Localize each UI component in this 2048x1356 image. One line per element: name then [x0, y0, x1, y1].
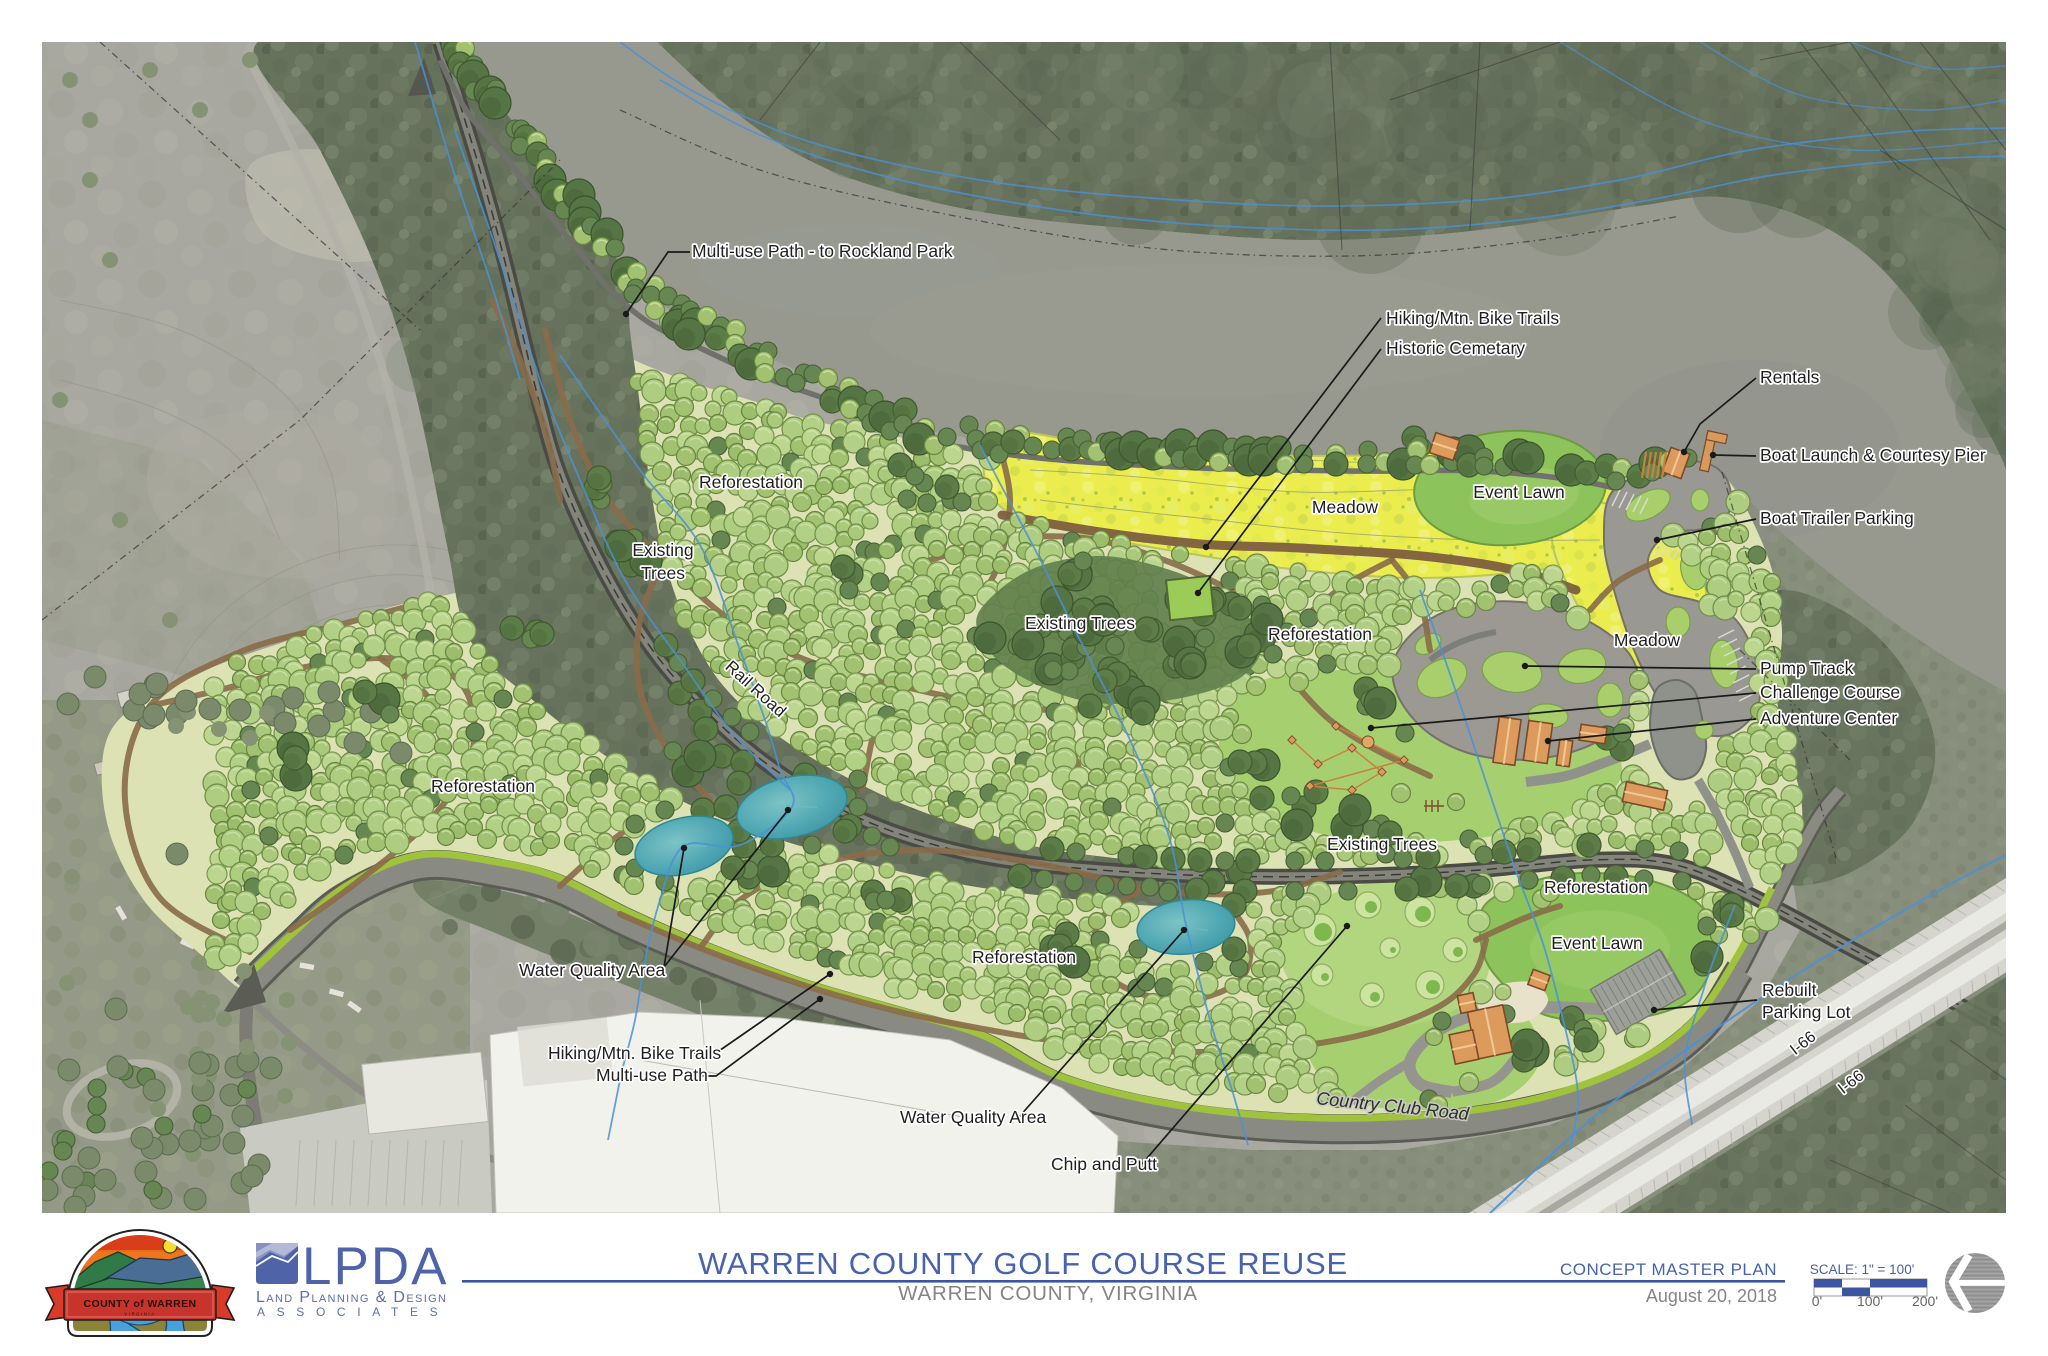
svg-text:Boat Trailer Parking: Boat Trailer Parking [1760, 508, 1914, 528]
svg-text:Existing: Existing [632, 540, 693, 560]
svg-text:Reforestation: Reforestation [699, 472, 803, 492]
svg-text:Water Quality Area: Water Quality Area [519, 960, 665, 980]
svg-text:Hiking/Mtn. Bike Trails: Hiking/Mtn. Bike Trails [1386, 308, 1559, 328]
svg-text:Trees: Trees [641, 563, 685, 583]
svg-text:Hiking/Mtn. Bike Trails: Hiking/Mtn. Bike Trails [548, 1043, 721, 1063]
svg-text:Pump Track: Pump Track [1760, 658, 1854, 678]
svg-text:Challenge Course: Challenge Course [1760, 682, 1900, 702]
svg-text:SCALE: 1" = 100': SCALE: 1" = 100' [1810, 1262, 1915, 1277]
svg-text:Rebuilt: Rebuilt [1762, 980, 1817, 1000]
svg-text:WARREN COUNTY, VIRGINIA: WARREN COUNTY, VIRGINIA [898, 1282, 1198, 1305]
svg-text:Chip and Putt: Chip and Putt [1051, 1154, 1157, 1174]
svg-text:Reforestation: Reforestation [431, 776, 535, 796]
svg-text:Multi-use Path: Multi-use Path [596, 1065, 708, 1085]
svg-text:Meadow: Meadow [1614, 630, 1681, 650]
svg-text:CONCEPT MASTER PLAN: CONCEPT MASTER PLAN [1560, 1260, 1777, 1279]
svg-text:Meadow: Meadow [1312, 497, 1379, 517]
svg-text:Land Planning & Design: Land Planning & Design [256, 1289, 446, 1306]
svg-text:Reforestation: Reforestation [1544, 877, 1648, 897]
svg-text:Adventure Center: Adventure Center [1760, 708, 1897, 728]
svg-text:ASSOCIATES: ASSOCIATES [257, 1305, 445, 1319]
svg-text:100': 100' [1857, 1293, 1883, 1309]
svg-text:Water Quality Area: Water Quality Area [900, 1107, 1046, 1127]
svg-text:Parking Lot: Parking Lot [1762, 1002, 1851, 1022]
svg-text:LPDA: LPDA [302, 1237, 448, 1296]
svg-text:Boat Launch & Courtesy Pier: Boat Launch & Courtesy Pier [1760, 445, 1986, 465]
svg-text:Reforestation: Reforestation [972, 947, 1076, 967]
svg-text:0': 0' [1812, 1293, 1822, 1309]
svg-text:COUNTY of WARREN: COUNTY of WARREN [84, 1298, 197, 1310]
svg-text:Multi-use Path - to Rockland P: Multi-use Path - to Rockland Park [692, 241, 953, 261]
svg-text:Event Lawn: Event Lawn [1473, 482, 1564, 502]
svg-text:Historic Cemetary: Historic Cemetary [1386, 338, 1525, 358]
svg-text:Existing Trees: Existing Trees [1327, 834, 1437, 854]
svg-text:200': 200' [1912, 1293, 1938, 1309]
svg-text:Reforestation: Reforestation [1268, 624, 1372, 644]
svg-text:Rentals: Rentals [1760, 367, 1820, 387]
svg-text:WARREN COUNTY GOLF COURSE REUS: WARREN COUNTY GOLF COURSE REUSE [698, 1246, 1348, 1281]
svg-text:August 20, 2018: August 20, 2018 [1646, 1286, 1777, 1306]
svg-text:Event Lawn: Event Lawn [1551, 933, 1642, 953]
svg-text:Existing Trees: Existing Trees [1025, 613, 1135, 633]
svg-text:VIRGINIA: VIRGINIA [124, 1312, 155, 1317]
